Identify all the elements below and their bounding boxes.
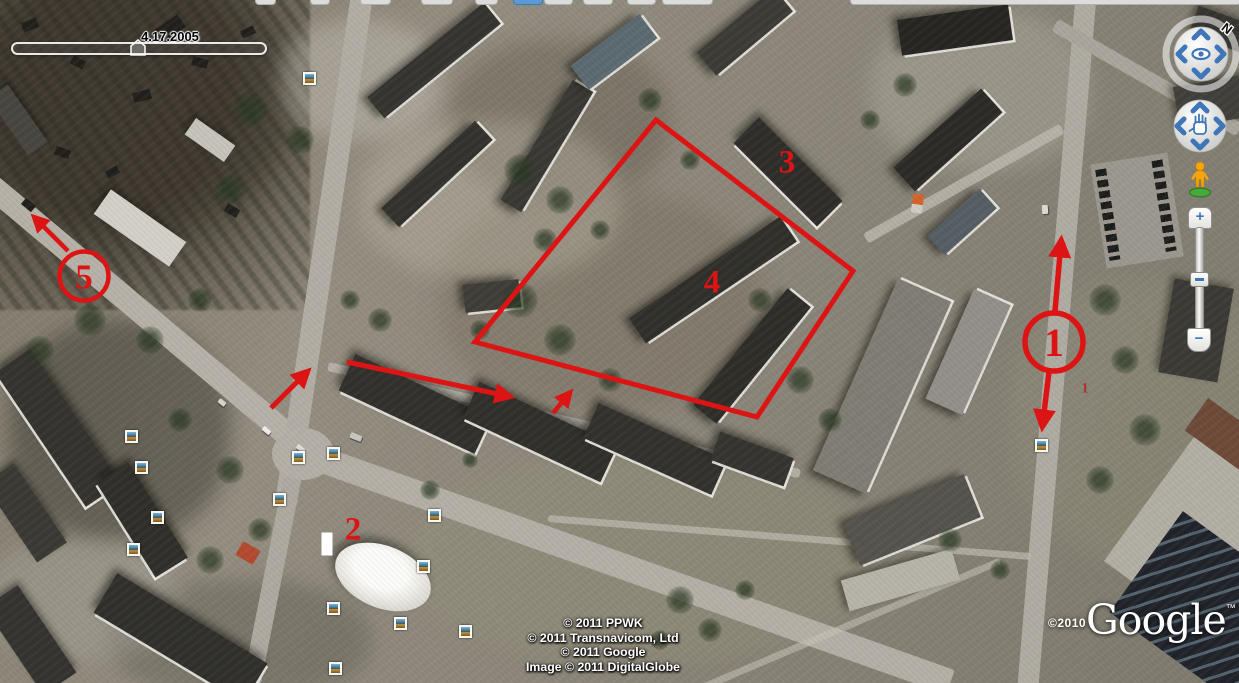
photo-icon[interactable] [327, 602, 340, 615]
tree-cluster [818, 408, 842, 432]
toolbar-button-clipped[interactable] [513, 0, 543, 5]
tree-cluster [74, 304, 106, 336]
tree-cluster [1089, 284, 1121, 316]
tree-cluster [1086, 466, 1114, 494]
parking-lot [1090, 153, 1183, 269]
tree-cluster [1129, 414, 1161, 446]
tree-cluster [26, 336, 54, 364]
tree-cluster [136, 326, 164, 354]
tree-cluster [188, 288, 212, 312]
tree-cluster [216, 456, 244, 484]
tree-cluster [638, 88, 662, 112]
tree-cluster [893, 73, 917, 97]
toolbar-button-clipped[interactable] [421, 0, 453, 5]
tree-cluster [470, 320, 490, 340]
tree-cluster [666, 586, 694, 614]
photo-icon[interactable] [273, 493, 286, 506]
tree-cluster [196, 546, 224, 574]
tree-cluster [232, 92, 268, 128]
toolbar-button-clipped[interactable] [627, 0, 656, 5]
tree-cluster [546, 186, 574, 214]
google-logo: Google [1086, 601, 1226, 640]
tree-cluster [990, 560, 1010, 580]
toolbar-button-clipped[interactable] [360, 0, 391, 5]
tree-cluster [544, 324, 576, 356]
photo-icon[interactable] [1035, 439, 1048, 452]
google-earth-viewport: 123451 4.17.2005 N [0, 0, 1239, 683]
tree-cluster [938, 528, 962, 552]
photo-icon[interactable] [151, 511, 164, 524]
zoom-in-button[interactable]: + [1188, 207, 1212, 229]
tree-cluster [680, 150, 700, 170]
tree-cluster [504, 154, 536, 186]
trademark-symbol: ™ [1226, 603, 1236, 614]
photo-icon[interactable] [135, 461, 148, 474]
tree-cluster [1111, 346, 1139, 374]
time-slider-date: 4.17.2005 [114, 29, 226, 44]
toolbar-button-clipped[interactable] [310, 0, 330, 5]
eye-icon [1193, 49, 1210, 59]
move-joystick[interactable] [1168, 94, 1232, 158]
tree-cluster [598, 368, 622, 392]
tree-cluster [168, 408, 192, 432]
attribution-line: Image © 2011 DigitalGlobe [418, 660, 788, 675]
tree-cluster [748, 288, 772, 312]
tree-cluster [533, 228, 557, 252]
photo-icon[interactable] [292, 451, 305, 464]
vehicle [1042, 205, 1049, 214]
tree-cluster [735, 580, 755, 600]
photo-icon[interactable] [394, 617, 407, 630]
tree-cluster [214, 174, 246, 206]
tree-cluster [368, 308, 392, 332]
photo-icon[interactable] [125, 430, 138, 443]
satellite-imagery[interactable] [0, 0, 1239, 683]
photo-icon[interactable] [127, 543, 140, 556]
apartment-building [697, 0, 793, 76]
photo-icon[interactable] [428, 509, 441, 522]
tree-cluster [786, 366, 814, 394]
photo-icon[interactable] [327, 447, 340, 460]
google-watermark: ©2010 Google ™ [1048, 601, 1236, 640]
toolbar-button-clipped[interactable] [475, 0, 498, 5]
toolbar-button-clipped[interactable] [850, 0, 1239, 5]
white-rectangle-marker [322, 533, 333, 556]
zoom-slider-handle[interactable] [1190, 272, 1209, 287]
look-joystick[interactable]: N [1160, 12, 1239, 96]
vehicle [349, 432, 362, 442]
toolbar-button-clipped[interactable] [544, 0, 573, 5]
photo-icon[interactable] [303, 72, 316, 85]
imagery-year: ©2010 [1048, 616, 1086, 630]
toolbar-button-clipped[interactable] [583, 0, 613, 5]
toolbar-button-clipped[interactable] [255, 0, 276, 5]
apartment-building [734, 118, 843, 227]
tree-cluster [286, 126, 314, 154]
tree-cluster [248, 518, 272, 542]
attribution-line: © 2011 Transnavicom, Ltd [418, 631, 788, 646]
tree-cluster [420, 480, 440, 500]
photo-icon[interactable] [417, 560, 430, 573]
attribution-line: © 2011 Google [418, 645, 788, 660]
toolbar-button-clipped[interactable] [662, 0, 713, 5]
tree-cluster [340, 290, 360, 310]
tree-cluster [590, 220, 610, 240]
tree-cluster [502, 282, 538, 318]
photo-icon[interactable] [329, 662, 342, 675]
tree-cluster [462, 452, 478, 468]
attribution-line: © 2011 PPWK [418, 616, 788, 631]
copyright-attribution: © 2011 PPWK © 2011 Transnavicom, Ltd © 2… [418, 616, 788, 674]
zoom-out-button[interactable]: − [1187, 328, 1211, 352]
scenery-layer [0, 0, 1239, 683]
tree-cluster [860, 110, 880, 130]
pegman[interactable] [1186, 160, 1214, 198]
